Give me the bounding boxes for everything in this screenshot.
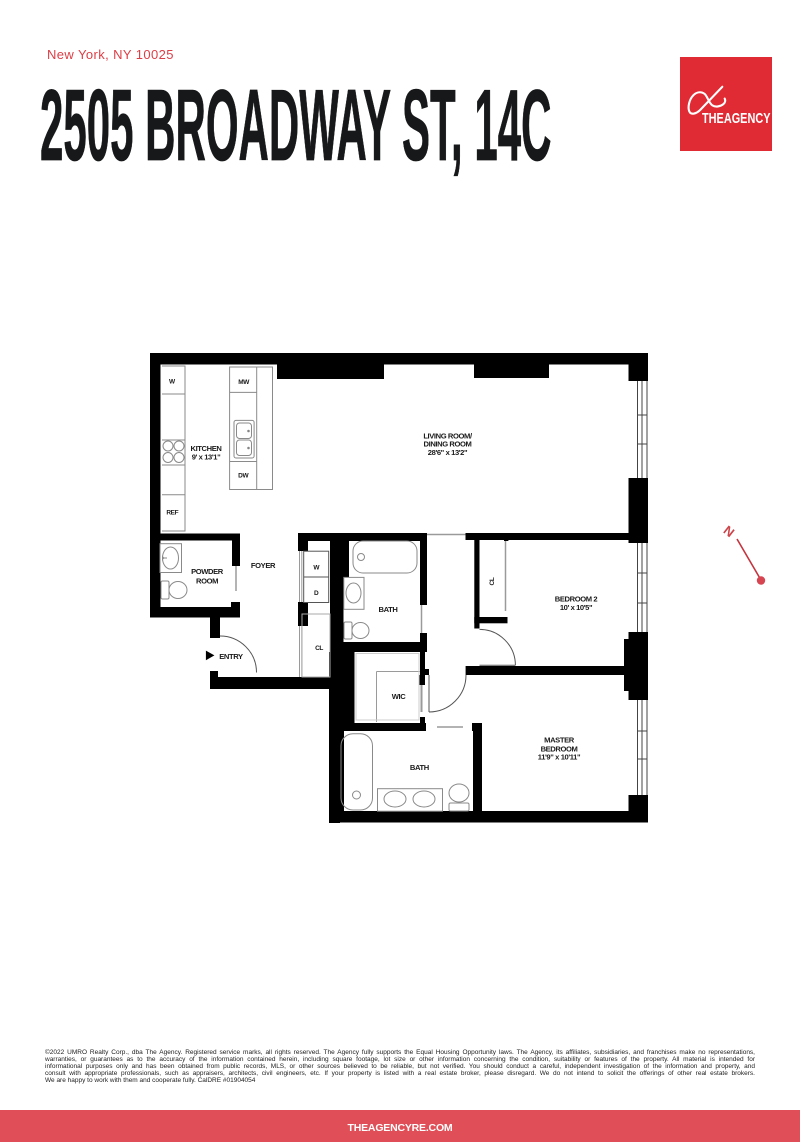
svg-text:ENTRY: ENTRY — [219, 652, 243, 661]
svg-text:POWDER: POWDER — [191, 567, 224, 576]
svg-text:D: D — [314, 590, 319, 597]
svg-text:9' x 13'1": 9' x 13'1" — [192, 453, 221, 462]
svg-text:DW: DW — [238, 473, 249, 480]
svg-text:WIC: WIC — [392, 692, 406, 701]
svg-text:10' x 10'5": 10' x 10'5" — [560, 603, 593, 612]
svg-text:N: N — [721, 523, 738, 541]
svg-text:W: W — [169, 379, 176, 386]
svg-text:REF: REF — [166, 510, 178, 517]
svg-text:W: W — [313, 565, 320, 572]
svg-text:28'6" x 13'2": 28'6" x 13'2" — [428, 448, 468, 457]
svg-text:ROOM: ROOM — [196, 577, 218, 586]
svg-text:11'9" x 10'11": 11'9" x 10'11" — [538, 753, 581, 762]
svg-text:BATH: BATH — [379, 605, 398, 614]
svg-text:BATH: BATH — [410, 763, 429, 772]
svg-text:MASTER: MASTER — [544, 735, 575, 744]
svg-text:CL: CL — [489, 577, 496, 585]
svg-text:FOYER: FOYER — [251, 561, 276, 570]
svg-text:CL: CL — [315, 645, 323, 652]
svg-text:MW: MW — [238, 379, 250, 386]
